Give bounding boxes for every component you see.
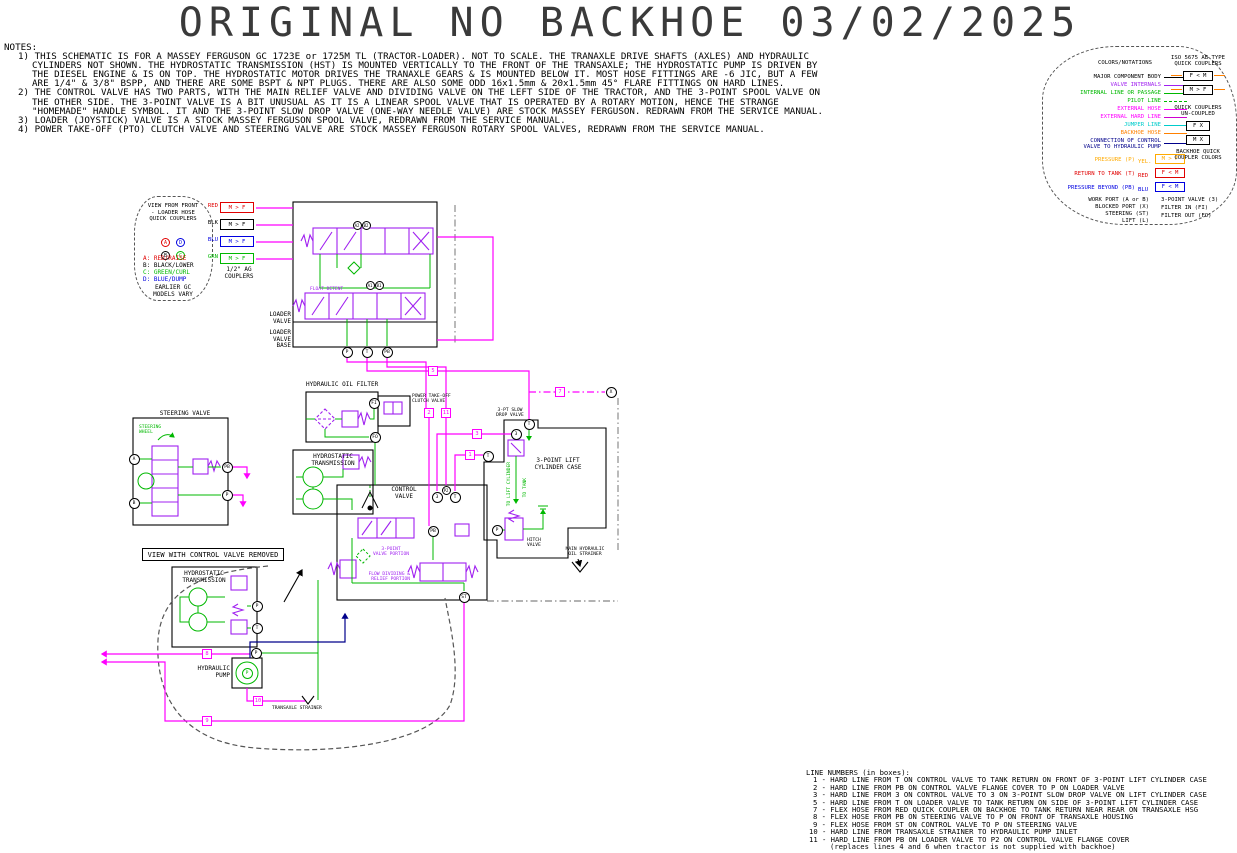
loader-valve-base-label: LOADER VALVE BASE [258,330,291,350]
uncoupled-box: F X [1186,121,1210,131]
iso-couplers-header: ISO 5675 AB TYPE QUICK COUPLERS [1165,55,1231,67]
coupler-box-grn: M > F [220,253,254,264]
loader-valve-label: LOADER VALVE [258,312,291,325]
cv-port-st: ST [459,592,470,603]
legend-port-label: RETURN TO TANK (T) [1043,171,1135,177]
coupler-list-item: D: BLUE/DUMP [143,277,186,284]
legend-row-label: MAJOR COMPONENT BODY [1043,74,1161,80]
coupler-view-footer: EARLIER GC MODELS VARY [141,285,205,298]
main-strainer-symbol [572,562,588,572]
slow-drop-label: 3-PT SLOW DROP VALVE [488,408,532,418]
legend-row-label: BACKHOE HOSE [1043,130,1161,136]
loader-port-b2: B2 [362,221,371,230]
transaxle-port-p: P [251,648,262,659]
coupler-box-red: M > F [220,202,254,213]
blocked-port-x: X [606,387,617,398]
hst2-port-p: P [252,601,263,612]
legend-port-tag: RED [1138,173,1154,179]
coupler-view: VIEW FROM FRONT - LOADER HOSE QUICK COUP… [134,196,213,301]
transaxle-strainer-label: TRANSAXLE STRAINER [272,706,322,711]
to-lift-cylinder-label: TO LIFT CYLINDER [507,462,512,506]
backhoe-coupler-header: BACKHOE QUICK COUPLER COLORS [1165,149,1231,161]
uncoupled-box: M X [1186,135,1210,145]
page-title: ORIGINAL NO BACKHOE 03/02/2025 [150,0,1110,46]
legend-port-label: PRESSURE (P) [1043,157,1135,163]
coupler-view-title: VIEW FROM FRONT - LOADER HOSE QUICK COUP… [138,203,208,223]
legend-abbrev: FILTER IN (FI) [1161,205,1231,211]
pto-valve-body [378,396,410,426]
legend-row-label: EXTERNAL HARD LINE [1043,114,1161,120]
control-valve-label: CONTROL VALVE [376,487,432,500]
line-marker-8: 8 [202,649,212,659]
float-detent-label: FLOAT DETENT [310,287,343,292]
lift-cylinder-case-body [484,420,606,558]
uncoupled-header: QUICK COUPLERS UN-COUPLED [1165,105,1231,117]
loader-port-a1: A1 [366,281,375,290]
hydraulic-pump-label: HYDRAULIC PUMP [190,666,230,679]
note-2: 2) THE CONTROL VALVE HAS TWO PARTS, WITH… [4,88,894,115]
legend-abbrev: 3-POINT VALVE (3) [1161,197,1231,203]
note-4: 4) POWER TAKE-OFF (PTO) CLUTCH VALVE AND… [4,125,894,134]
loader-port-t: T [362,347,373,358]
legend-abbrev: WORK PORT (A or B) [1043,197,1149,203]
pump-port-p: P [242,668,253,679]
main-strainer-label: MAIN HYDRAULIC OIL STRAINER [560,547,610,557]
case-port-3: 3 [511,429,522,440]
legend-port-tag: BLU [1138,187,1154,193]
line-1 [455,455,483,491]
transaxle-strainer-symbol [302,696,314,704]
couplers-caption: 1/2" AG COUPLERS [219,267,259,280]
steering-port-pb: PB [222,462,233,473]
legend-row-label: VALVE INTERNALS [1043,82,1161,88]
line-marker-3: 3 [472,429,482,439]
notes-block: NOTES: 1) THIS SCHEMATIC IS FOR A MASSEY… [4,43,894,134]
line-marker-11: 11 [441,408,451,418]
legend-port-box: F < M [1155,182,1185,192]
loader-port-a2: A2 [353,221,362,230]
line-numbers-list: LINE NUMBERS (in boxes): 1 - HARD LINE F… [806,769,1226,850]
legend-row-label: PILOT LINE [1043,98,1161,104]
steering-valve-label: STEERING VALVE [150,411,220,418]
legend-row-label: CONNECTION OF CONTROL VALVE TO HYDRAULIC… [1043,138,1161,150]
legend-abbrev: STEERING (ST) [1043,211,1149,217]
note-1: 1) THIS SCHEMATIC IS FOR A MASSEY FERGUS… [4,52,894,88]
case-port-t-top: T [524,419,535,430]
coupler-tag-blk: BLK [202,220,218,226]
line-marker-5: 5 [428,366,438,376]
line-marker-10: 10 [253,696,263,706]
coupler-tag-blu: BLU [202,237,218,243]
coupler-tag-red: RED [202,203,218,209]
cv-port-t: T [450,492,461,503]
coupler-box-blu: M > F [220,236,254,247]
case-port-t-side: T [483,451,494,462]
line-marker-1: 1 [465,450,475,460]
legend-port-tag: YEL. [1138,159,1154,165]
internal-passages [138,254,548,700]
legend-port-label: PRESSURE BEYOND (PB) [1043,185,1135,191]
loader-port-pb: PB [382,347,393,358]
oil-filter-label: HYDRAULIC OIL FILTER [306,382,378,389]
legend-abbrev: LIFT (L) [1043,218,1149,224]
legend-port-box: F < M [1155,168,1185,178]
loader-port-p: P [342,347,353,358]
legend-row-label: EXTERNAL HOSE [1043,106,1161,112]
cv-port-p2: P2 [442,486,451,495]
cylinder-case-label: 3-POINT LIFT CYLINDER CASE [516,458,600,471]
cv-port-pb: PB [428,526,439,537]
legend-abbrev: BLOCKED PORT (X) [1043,204,1149,210]
steering-wheel-label: STEERING WHEEL [139,425,161,435]
schematic-page: ORIGINAL NO BACKHOE 03/02/2025 NOTES: 1)… [0,0,1237,853]
pto-valve-label: POWER TAKE-OFF CLUTCH VALVE [412,394,458,404]
removed-view-arrow [284,570,302,602]
iso-coupler-box: M > F [1183,85,1213,95]
pump-connection-line [250,614,345,658]
line-marker-7: 7 [555,387,565,397]
steering-port-p: P [222,490,233,501]
three-point-portion-label: 3-POINT VALVE PORTION [363,547,419,557]
case-port-p: P [492,525,503,536]
legend: COLORS/NOTATIONS MAJOR COMPONENT BODY VA… [1042,46,1237,225]
flow-div-portion-label: FLOW DIVIDING & RELIEF PORTION [348,572,410,582]
line-9 [102,603,464,721]
legend-abbrev: FILTER OUT (FO) [1161,213,1231,219]
filter-port-fo: FO [370,432,381,443]
loader-port-b1: B1 [375,281,384,290]
to-tank-label: TO TANK [523,478,528,497]
line-numbers-footnote: (replaces lines 4 and 6 when tractor is … [806,843,1226,850]
iso-coupler-box: F < M [1183,71,1213,81]
cv-port-3: 3 [432,492,443,503]
hitch-valve-label: HITCH VALVE [527,538,541,548]
steering-port-b: B [129,498,140,509]
line-marker-9: 9 [202,716,212,726]
legend-row-label: INTERNAL LINE OR PASSAGE [1043,90,1161,96]
coupler-tag-grn: GRN [202,254,218,260]
legend-row-label: JUMPER LINE [1043,122,1161,128]
coupler-box-blk: M > F [220,219,254,230]
hst2-port-t: T [252,623,263,634]
hose-loop [437,237,493,340]
hst2-label: HYDROSTATIC TRANSMISSION [176,571,232,584]
filter-port-fi: FI [369,398,380,409]
view-removed-title: VIEW WITH CONTROL VALVE REMOVED [142,548,284,561]
hst-label: HYDROSTATIC TRANSMISSION [296,454,370,467]
line-marker-2: 2 [424,408,434,418]
steering-port-a: A [129,454,140,465]
